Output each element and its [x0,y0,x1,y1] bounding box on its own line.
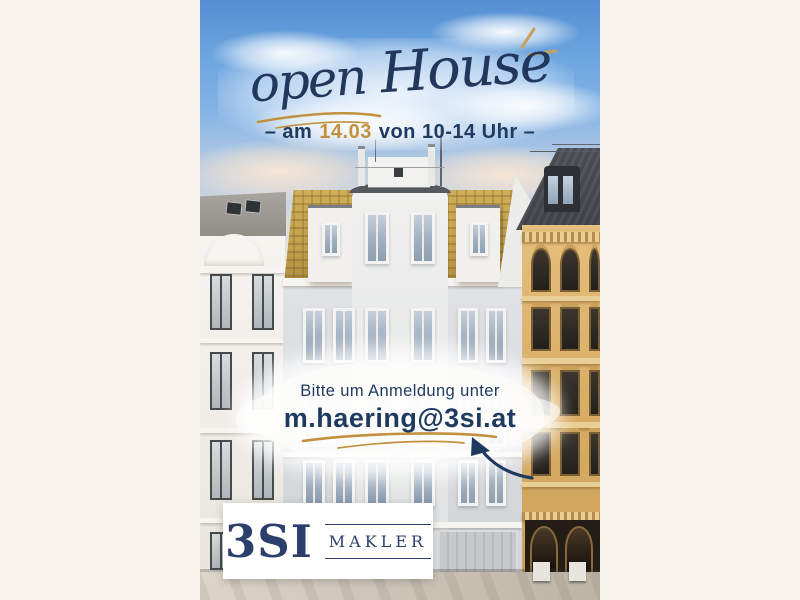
window [531,432,551,476]
cornice [522,232,600,242]
window [560,248,580,292]
roof-railing [530,151,600,152]
window [365,308,389,363]
roof-skylight [244,199,261,214]
window [333,460,355,506]
window [333,308,355,363]
dormer-window [548,176,558,204]
window [589,248,600,292]
roof-railing [355,167,445,168]
window [365,460,389,506]
event-date: 14.03 [319,121,372,144]
poster-page: open House – am 14.03 von 10-14 Uhr – Bi… [0,0,800,600]
chimney [428,144,435,186]
window [560,432,580,476]
company-logo: 3SI MAKLER [223,503,433,579]
building-photo: open House – am 14.03 von 10-14 Uhr – Bi… [200,0,600,600]
window [486,460,506,506]
window [458,308,478,363]
window [303,308,325,363]
window [411,212,435,264]
window [531,248,551,292]
cornice [522,296,600,301]
contact-intro: Bitte um Anmeldung unter [200,382,600,401]
left-building-roof [200,192,286,236]
window [210,440,232,500]
event-date-line: – am 14.03 von 10-14 Uhr – [200,121,600,144]
window [365,212,389,264]
rooftop-vent [394,168,403,177]
window [486,308,506,363]
headline-word-house: House [378,30,553,107]
cornice [200,266,285,273]
contact-email: m.haering@3si.at [200,403,600,434]
window [303,460,325,506]
contact-block: Bitte um Anmeldung unter m.haering@3si.a… [200,382,600,434]
logo-brand-text: 3SI [225,519,313,564]
planter [569,562,586,581]
dormer-window [563,176,573,204]
window [458,460,478,506]
roof-skylight [225,201,242,216]
planter [533,562,550,581]
cornice [522,358,600,364]
window [531,307,551,351]
cornice [522,482,600,487]
window [411,308,435,363]
window [589,432,600,476]
cornice [200,338,285,343]
window [470,222,488,256]
event-line-post: von 10-14 Uhr – [379,121,535,144]
headline-word-open: open [248,47,368,113]
window [252,274,274,330]
window [252,440,274,500]
event-line-pre: – am [265,121,313,144]
cornice [522,512,600,520]
window [411,460,435,506]
window [589,307,600,351]
window [210,274,232,330]
window [322,222,340,256]
chimney [358,146,365,186]
window [560,307,580,351]
logo-division-text: MAKLER [325,524,431,559]
